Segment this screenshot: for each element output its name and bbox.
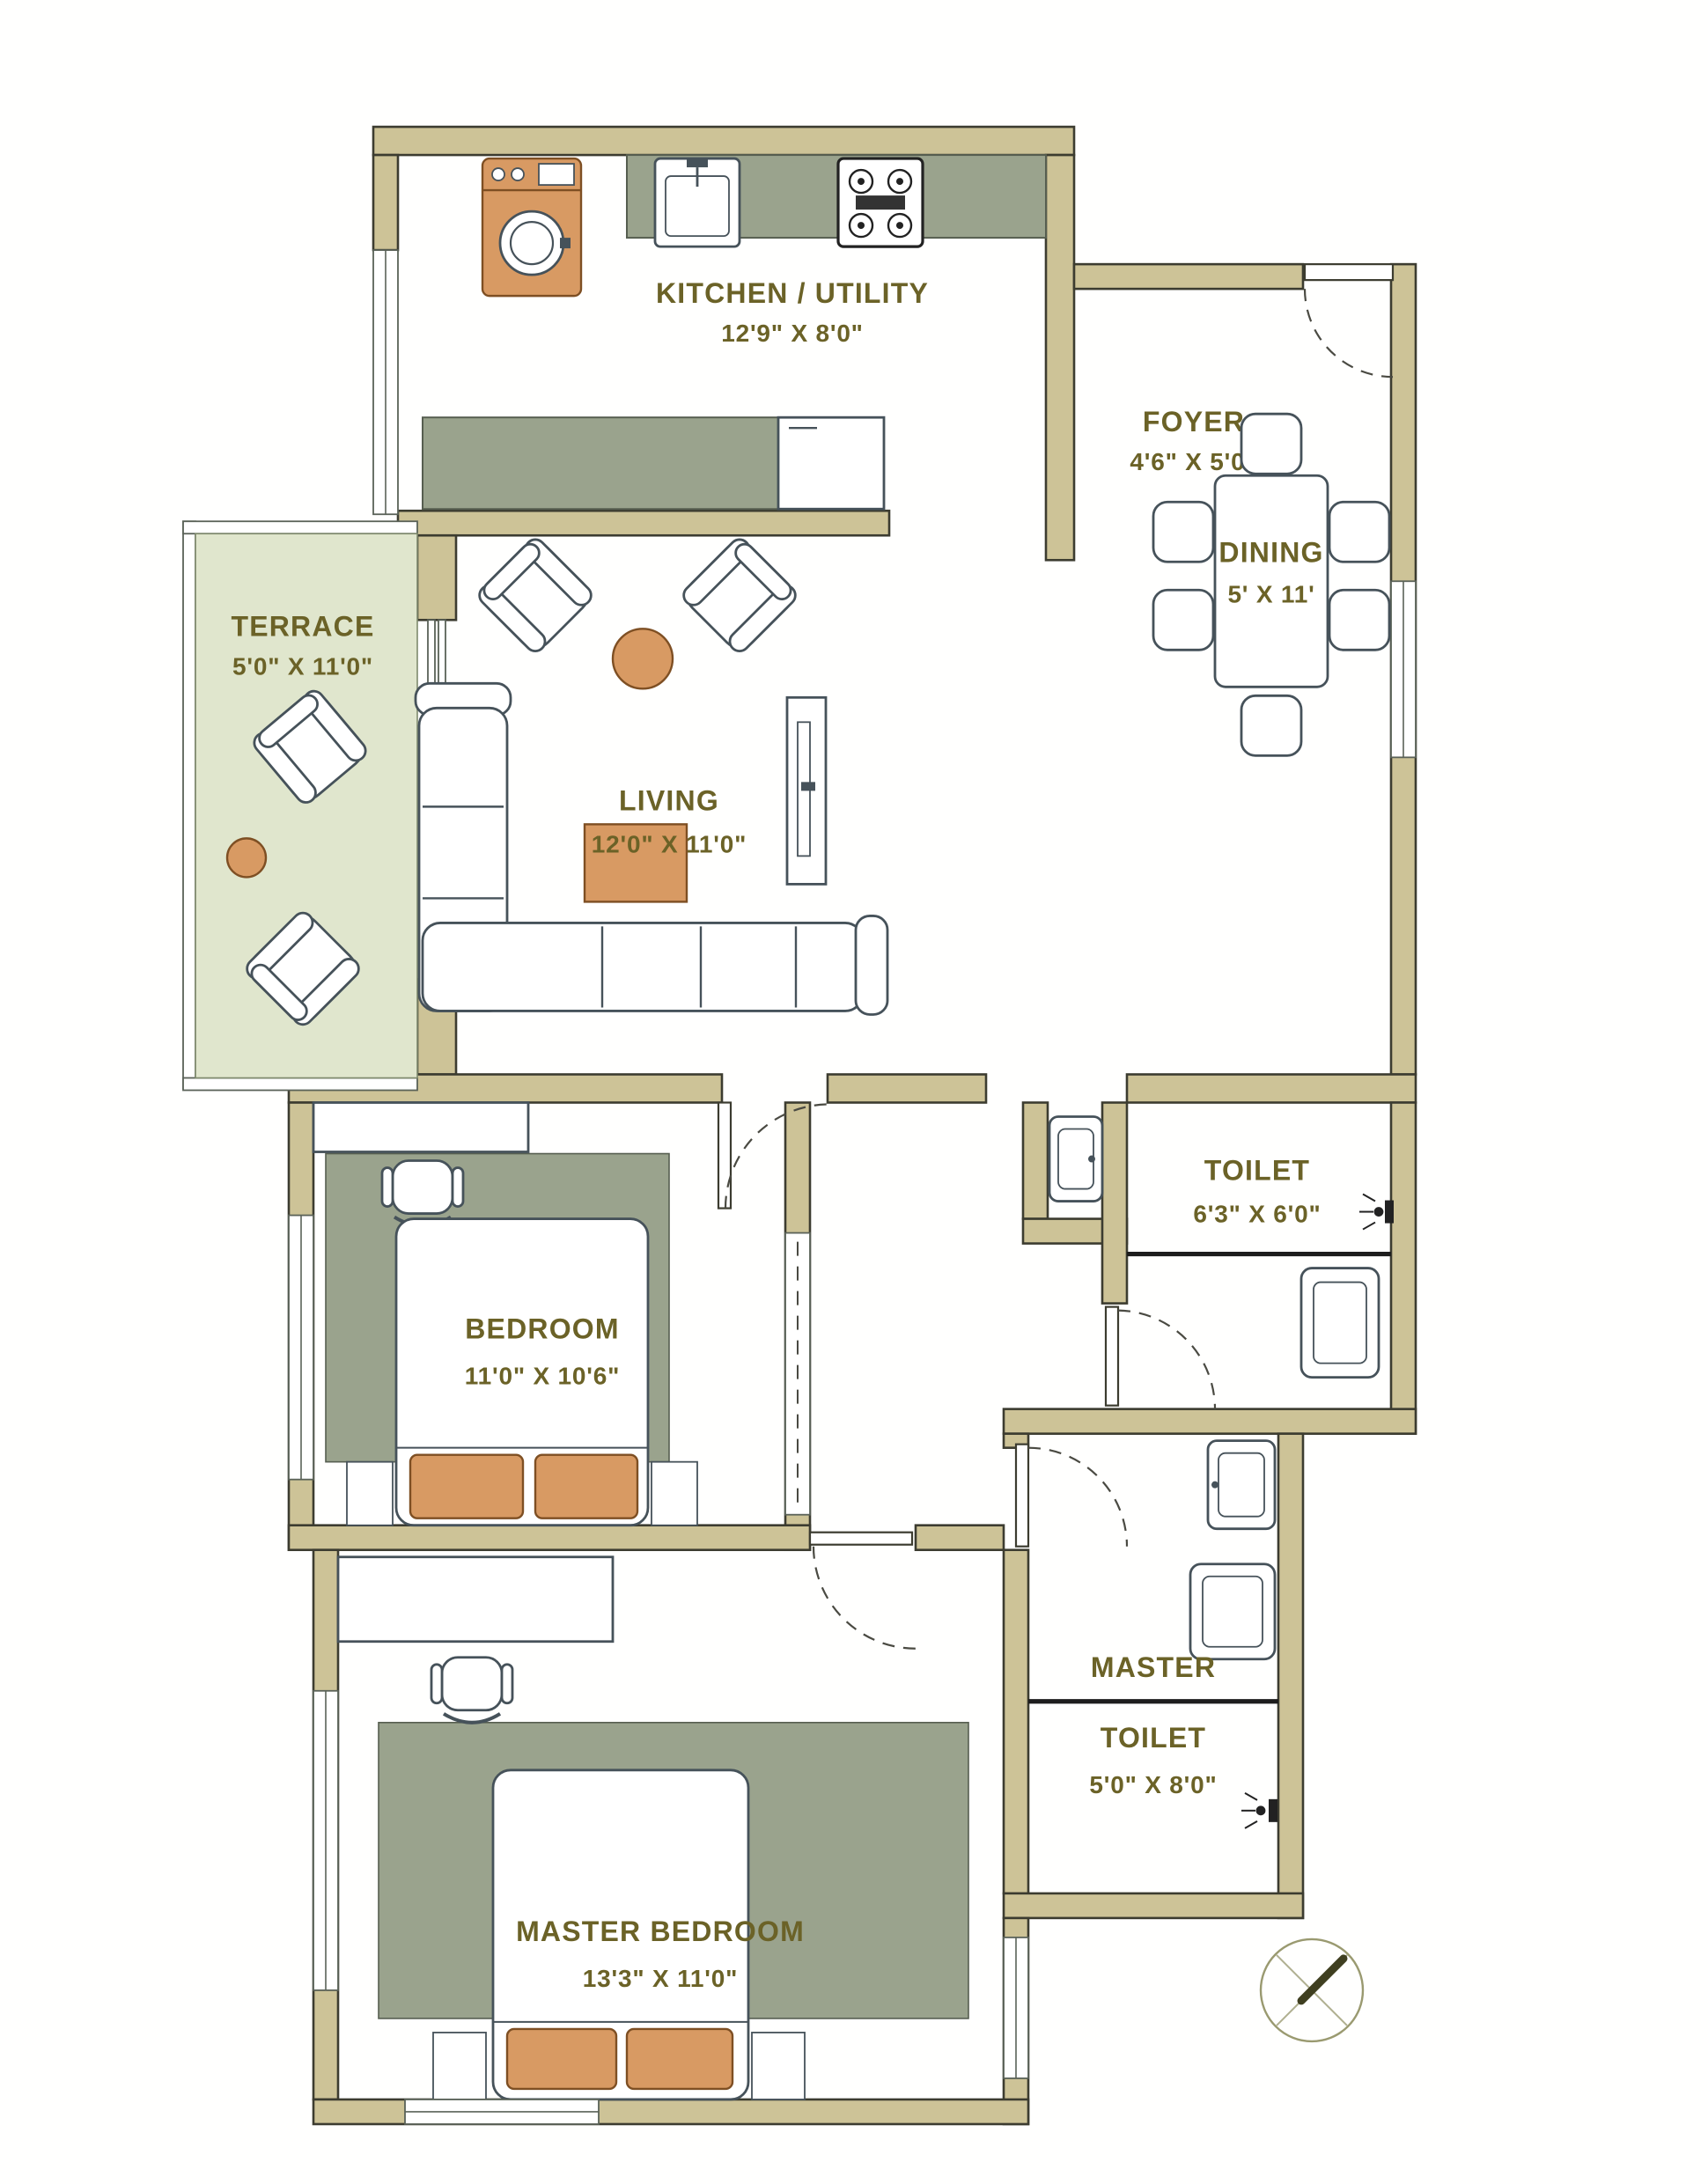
- master-bedroom-desk-chair: [431, 1658, 512, 1723]
- terrace-railing-left: [183, 521, 195, 1088]
- room-toilet: TOILET 6'3" X 6'0": [1049, 1117, 1393, 1409]
- toilet-wc-icon: [1301, 1268, 1379, 1378]
- dining-chair-bottom: [1241, 695, 1301, 755]
- master-toilet-right-wall: [1278, 1434, 1303, 1918]
- toilet-right-wall: [1391, 1103, 1416, 1434]
- master-side-table-right: [752, 2033, 805, 2099]
- dining-chair-left-1: [1153, 502, 1213, 562]
- kitchen-sink-icon: [655, 158, 740, 246]
- bedroom-bottom-wall: [289, 1526, 810, 1550]
- duct-shaft: [373, 250, 398, 514]
- toilet-door-leaf: [1106, 1307, 1118, 1406]
- bedroom-bottom-wall-stub: [916, 1526, 1004, 1550]
- main-door-leaf: [1305, 264, 1393, 280]
- master-toilet-label-2: TOILET: [1101, 1722, 1206, 1754]
- dining-chair-right-2: [1329, 590, 1389, 650]
- terrace-railing-top: [183, 521, 417, 533]
- master-toilet-bottom-wall: [1004, 1894, 1303, 1918]
- foyer-top-wall: [1074, 264, 1303, 289]
- dining-size: 5' X 11': [1227, 580, 1314, 607]
- master-toilet-door-swing: [1028, 1448, 1127, 1547]
- room-bedroom: BEDROOM 11'0" X 10'6": [289, 1103, 828, 1526]
- kitchen-counter-bottom: [423, 417, 778, 509]
- bedroom-door-leaf: [718, 1103, 731, 1209]
- kitchen-right-wall: [1046, 155, 1074, 560]
- terrace-corner-wall-top: [417, 535, 456, 620]
- master-bedroom-label: MASTER BEDROOM: [516, 1916, 805, 1947]
- toilet-door-swing: [1118, 1311, 1215, 1409]
- dining-label: DINING: [1218, 536, 1323, 568]
- bedroom-side-table-left: [347, 1462, 393, 1526]
- toilet-size: 6'3" X 6'0": [1193, 1201, 1321, 1228]
- terrace-label: TERRACE: [231, 610, 374, 642]
- washing-machine-icon: [482, 158, 581, 296]
- terrace-side-table: [227, 838, 266, 877]
- compass-icon: [1261, 1939, 1363, 2041]
- master-toilet-size: 5'0" X 8'0": [1089, 1771, 1217, 1798]
- master-bedroom-desk: [338, 1557, 613, 1642]
- master-toilet-wc-icon: [1190, 1564, 1275, 1659]
- master-toilet-label-1: MASTER: [1091, 1651, 1216, 1683]
- living-bottom-wall-mid: [828, 1074, 986, 1102]
- terrace-railing-bottom: [183, 1077, 417, 1090]
- toilet-top-wall: [1127, 1074, 1416, 1102]
- living-armchair-left: [475, 535, 595, 655]
- bedroom-side-table-right: [652, 1462, 697, 1526]
- toilet-left-wall: [1102, 1103, 1127, 1304]
- bedroom-desk: [313, 1103, 528, 1152]
- fridge-icon: [778, 417, 884, 509]
- bedroom-label: BEDROOM: [465, 1313, 619, 1345]
- bedroom-size: 11'0" X 10'6": [465, 1363, 620, 1390]
- foyer-label: FOYER: [1143, 406, 1245, 438]
- room-kitchen: KITCHEN / UTILITY 12'9" X 8'0": [423, 155, 1046, 509]
- kitchen-bottom-wall: [398, 511, 889, 535]
- main-door-swing: [1305, 289, 1393, 377]
- master-toilet-washbasin-icon: [1208, 1441, 1275, 1529]
- kitchen-label: KITCHEN / UTILITY: [656, 277, 929, 309]
- kitchen-size: 12'9" X 8'0": [721, 320, 864, 347]
- basin-nook-wall: [1023, 1103, 1048, 1219]
- tv-unit: [787, 697, 826, 884]
- shower-icon: [1359, 1195, 1393, 1230]
- master-toilet-door-leaf: [1016, 1445, 1028, 1547]
- toilet-bottom-wall: [1004, 1409, 1416, 1434]
- foyer-size: 4'6" X 5'0": [1130, 448, 1257, 475]
- stove-icon: [838, 158, 923, 246]
- kitchen-left-wall-stub: [373, 155, 398, 250]
- master-toilet-left-wall: [1004, 1550, 1028, 1894]
- dining-chair-top: [1241, 414, 1301, 474]
- master-side-table-left: [433, 2033, 486, 2099]
- room-master-bedroom: MASTER BEDROOM 13'3" X 11'0": [313, 1533, 1028, 2124]
- floor-plan-drawing: TERRACE 5'0" X 11'0": [0, 0, 1708, 2184]
- room-terrace: TERRACE 5'0" X 11'0": [183, 521, 445, 1090]
- living-size: 12'0" X 11'0": [592, 830, 747, 857]
- dining-chair-left-2: [1153, 590, 1213, 650]
- bedroom-door-swing: [725, 1105, 828, 1209]
- master-shower-icon: [1241, 1793, 1277, 1828]
- toilet-label: TOILET: [1204, 1155, 1310, 1187]
- room-living: LIVING 12'0" X 11'0": [416, 535, 887, 1014]
- living-armchair-right: [680, 535, 799, 655]
- toilet-washbasin-icon: [1049, 1117, 1102, 1202]
- dining-chair-right-1: [1329, 502, 1389, 562]
- master-bedroom-door-leaf: [810, 1533, 912, 1545]
- living-side-table: [613, 629, 673, 688]
- master-bedroom-door-swing: [814, 1547, 916, 1649]
- master-bedroom-size: 13'3" X 11'0": [583, 1965, 738, 1992]
- living-label: LIVING: [619, 784, 719, 816]
- terrace-size: 5'0" X 11'0": [232, 652, 373, 680]
- floor-plan-page: TERRACE 5'0" X 11'0": [0, 0, 1708, 2184]
- room-master-toilet: MASTER TOILET 5'0" X 8'0": [1016, 1441, 1278, 1828]
- bedroom-wardrobe-slider: [785, 1233, 810, 1515]
- kitchen-top-wall: [373, 127, 1074, 155]
